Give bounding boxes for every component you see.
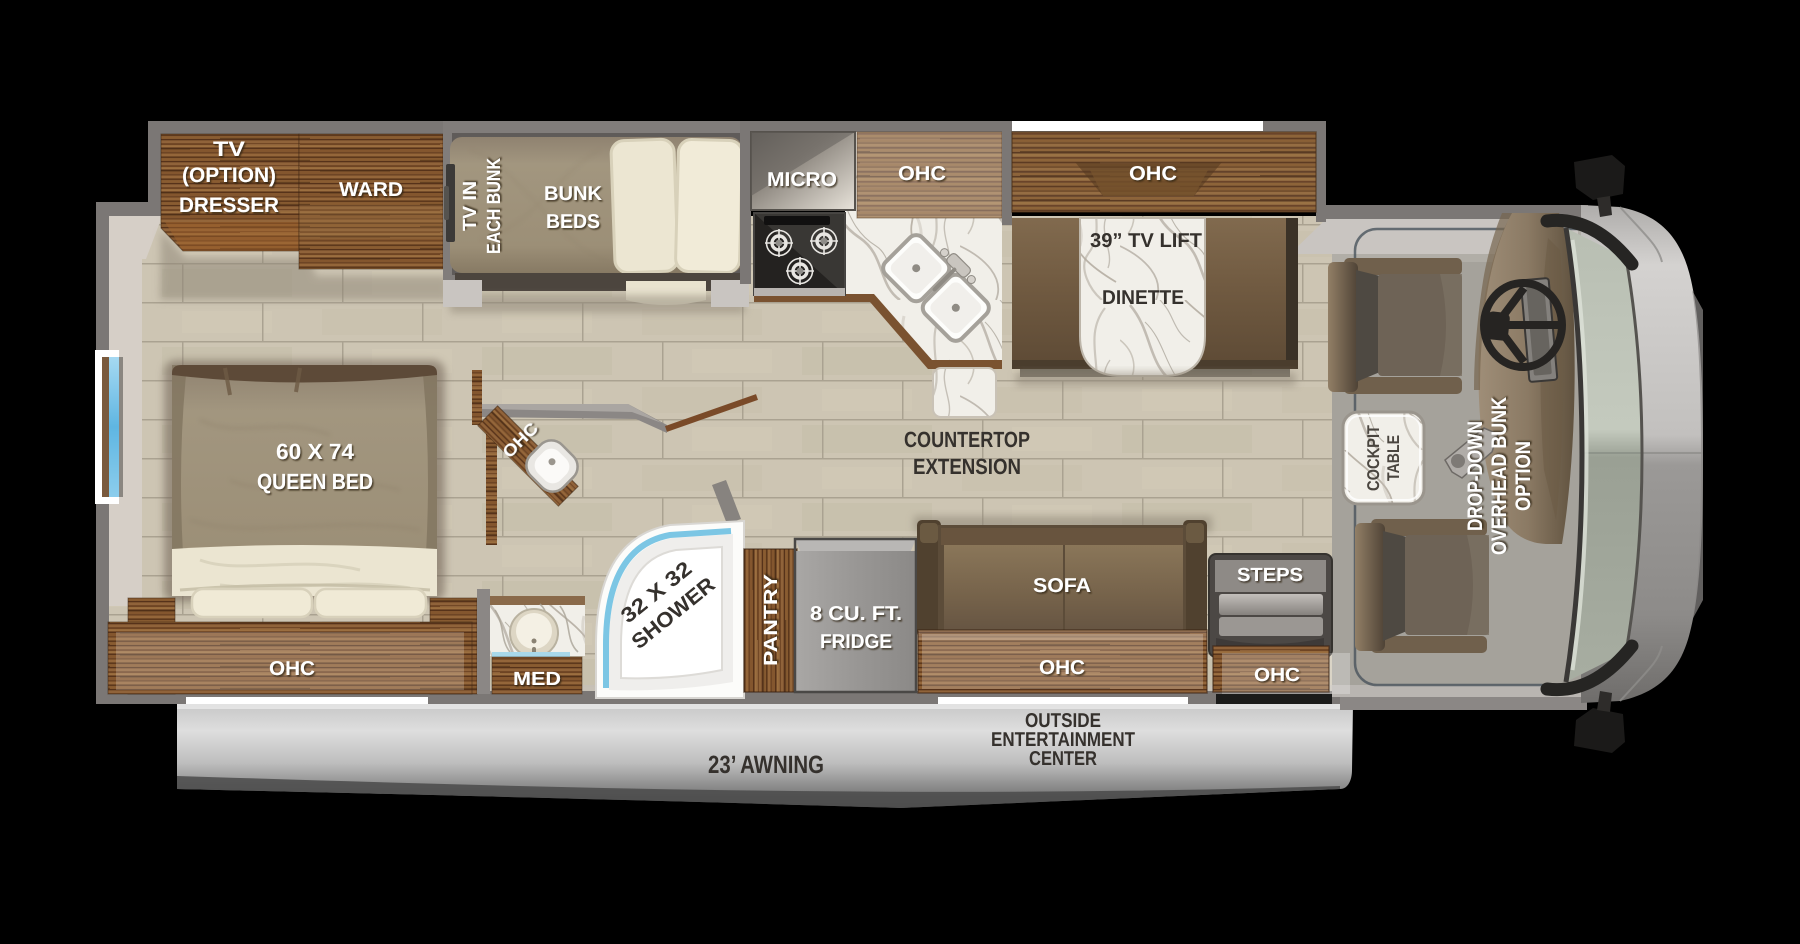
svg-text:BUNK: BUNK — [544, 183, 603, 205]
svg-text:(OPTION): (OPTION) — [182, 164, 276, 187]
svg-text:PANTRY: PANTRY — [761, 574, 782, 666]
svg-text:CENTER: CENTER — [1029, 748, 1097, 770]
svg-text:TV: TV — [213, 138, 245, 161]
svg-text:SOFA: SOFA — [1033, 575, 1091, 597]
svg-text:OHC: OHC — [1254, 665, 1300, 686]
svg-text:OHC: OHC — [269, 658, 315, 680]
svg-text:39” TV LIFT: 39” TV LIFT — [1090, 230, 1202, 252]
svg-text:COUNTERTOP: COUNTERTOP — [904, 427, 1030, 452]
svg-text:OHC: OHC — [1129, 163, 1177, 185]
svg-text:OPTION: OPTION — [1512, 441, 1535, 511]
svg-text:WARD: WARD — [339, 179, 403, 201]
svg-text:QUEEN BED: QUEEN BED — [257, 469, 373, 494]
svg-text:TABLE: TABLE — [1384, 435, 1403, 481]
svg-text:DRESSER: DRESSER — [179, 194, 279, 217]
svg-text:DINETTE: DINETTE — [1102, 287, 1184, 309]
svg-text:EACH BUNK: EACH BUNK — [484, 158, 505, 254]
svg-text:COCKPIT: COCKPIT — [1364, 424, 1383, 491]
svg-text:TV IN: TV IN — [460, 181, 481, 231]
svg-text:FRIDGE: FRIDGE — [820, 631, 892, 653]
svg-text:MICRO: MICRO — [767, 169, 837, 191]
svg-text:23’ AWNING: 23’ AWNING — [708, 751, 824, 779]
svg-text:60 X 74: 60 X 74 — [276, 439, 355, 464]
svg-text:OHC: OHC — [898, 163, 946, 185]
svg-text:BEDS: BEDS — [546, 211, 600, 233]
svg-text:OHC: OHC — [1039, 657, 1085, 679]
svg-text:EXTENSION: EXTENSION — [913, 454, 1021, 479]
svg-text:8 CU. FT.: 8 CU. FT. — [810, 603, 902, 625]
svg-text:OVERHEAD BUNK: OVERHEAD BUNK — [1488, 397, 1511, 555]
svg-text:MED: MED — [513, 669, 561, 690]
svg-text:DROP-DOWN: DROP-DOWN — [1464, 421, 1487, 531]
svg-text:STEPS: STEPS — [1237, 565, 1303, 586]
